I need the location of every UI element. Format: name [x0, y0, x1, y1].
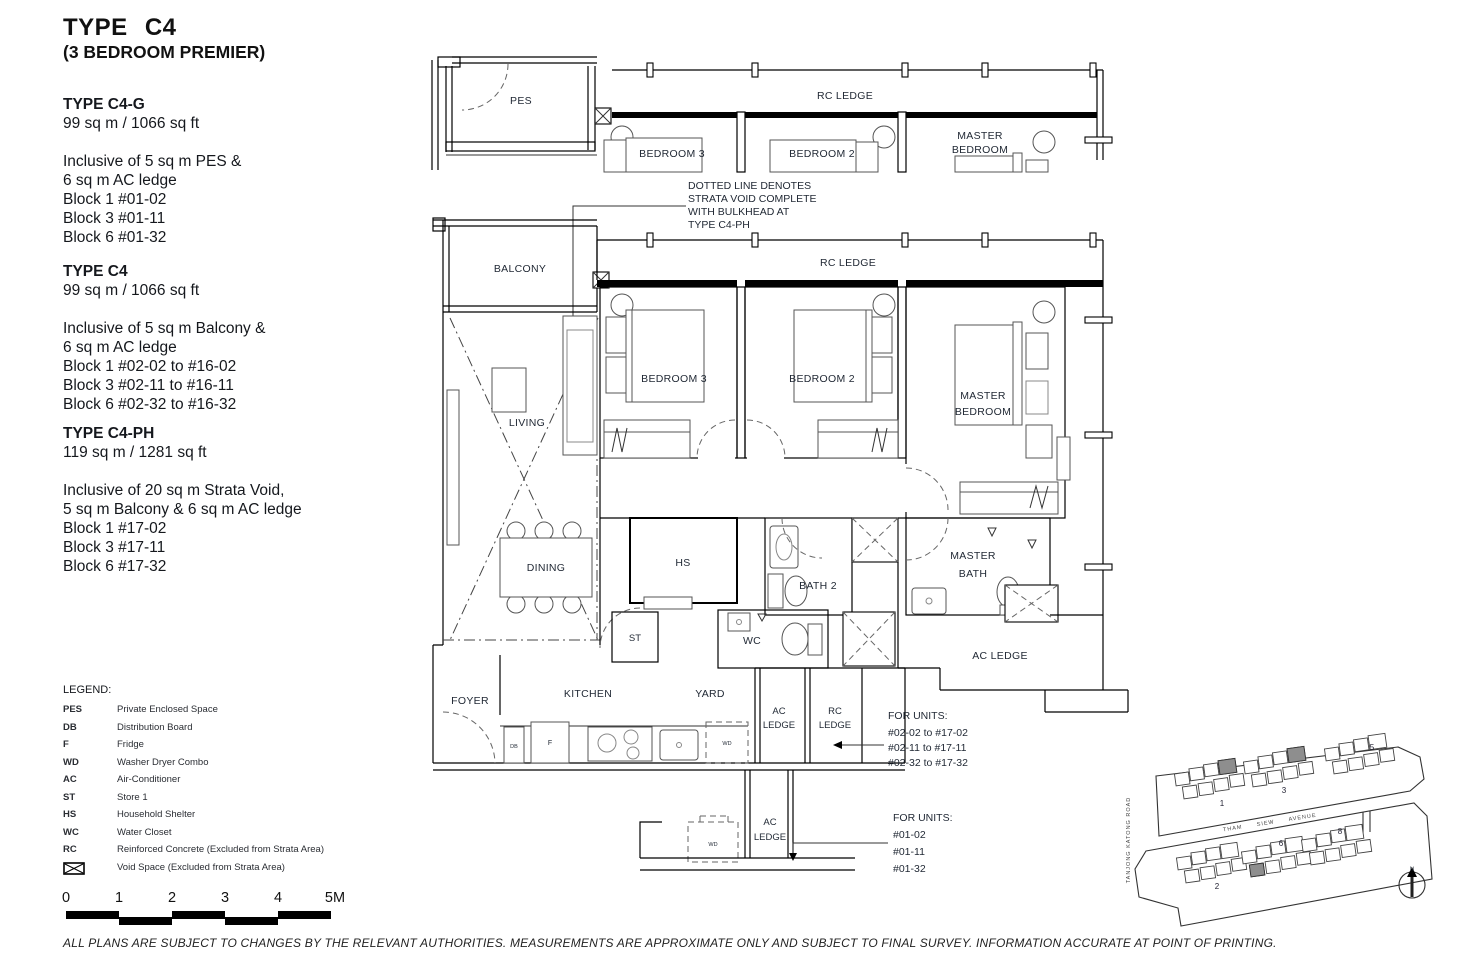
variant-c4ph: TYPE C4-PH 119 sq m / 1281 sq ft Inclusi…: [63, 424, 393, 576]
note-line: FOR UNITS:: [893, 812, 953, 824]
block-number: 3: [1282, 786, 1287, 795]
variant-name: TYPE C4: [63, 262, 393, 281]
variant-detail: Inclusive of 5 sq m Balcony &: [63, 319, 393, 338]
units-note-upper: FOR UNITS: #02-02 to #17-02 #02-11 to #1…: [833, 710, 968, 769]
room-label-master: MASTER: [957, 130, 1003, 142]
variant-c4g: TYPE C4-G 99 sq m / 1066 sq ft Inclusive…: [63, 95, 393, 247]
room-label-dining: DINING: [527, 562, 566, 574]
legend-abbr: RC: [63, 844, 117, 855]
legend-abbr: WC: [63, 827, 117, 838]
room-label-ledge: LEDGE: [819, 720, 851, 731]
block-number: 1: [1220, 799, 1225, 808]
ac-unit-icon: [1005, 585, 1058, 622]
room-label-rc-ledge: RC LEDGE: [817, 90, 873, 102]
ac-unit-icon: [843, 612, 895, 666]
scale-segment: [278, 911, 331, 919]
scale-num: 3: [221, 890, 229, 906]
room-label-master: BEDROOM: [955, 406, 1011, 418]
block-number: 6: [1279, 839, 1284, 848]
room-label-ac-ledge: AC LEDGE: [972, 650, 1028, 662]
variant-detail: 5 sq m Balcony & 6 sq m AC ledge: [63, 500, 393, 519]
note-line: #01-11: [893, 846, 925, 858]
legend-abbr: ST: [63, 792, 117, 803]
fixture-label-db: DB: [510, 744, 518, 750]
variant-detail: Block 1 #17-02: [63, 519, 393, 538]
variant-area: 99 sq m / 1066 sq ft: [63, 114, 393, 133]
disclaimer-text: ALL PLANS ARE SUBJECT TO CHANGES BY THE …: [63, 936, 1277, 950]
legend-abbr: HS: [63, 809, 117, 820]
room-label-ledge: LEDGE: [754, 832, 786, 843]
variant-detail: Block 3 #01-11: [63, 209, 393, 228]
scale-num: 4: [274, 890, 282, 906]
room-label-ledge: LEDGE: [763, 720, 795, 731]
scale-segment: [66, 911, 119, 919]
room-label-master-bath: BATH: [959, 568, 987, 580]
legend-heading: LEGEND:: [63, 684, 393, 696]
legend-row: FFridge: [63, 739, 393, 750]
compass-n-label: N: [1410, 867, 1414, 873]
variant-detail: Block 6 #01-32: [63, 228, 393, 247]
scale-num: 5M: [325, 890, 345, 906]
legend-desc: Private Enclosed Space: [117, 704, 218, 715]
note-line: #01-32: [893, 863, 926, 875]
site-plan: TANJONG KATONG ROAD THAM SIEW AVENUE 1 3…: [1126, 733, 1432, 926]
legend-desc: Void Space (Excluded from Strata Area): [117, 862, 285, 873]
room-label-bedroom2: BEDROOM 2: [789, 373, 855, 385]
room-label-balcony: BALCONY: [494, 263, 546, 275]
room-label-st: ST: [629, 633, 641, 644]
legend-row: RCReinforced Concrete (Excluded from Str…: [63, 844, 393, 855]
scale-segment: [119, 917, 172, 925]
floorplan-page: { "page": { "title": "TYPE C4", "subtitl…: [0, 0, 1473, 965]
note-line: #01-02: [893, 829, 926, 841]
room-label-bedroom2: BEDROOM 2: [789, 148, 855, 160]
variant-area: 119 sq m / 1281 sq ft: [63, 443, 393, 462]
note-line: WITH BULKHEAD AT: [688, 206, 790, 218]
legend-desc: Fridge: [117, 739, 144, 750]
legend-abbr: AC: [63, 774, 117, 785]
note-line: #02-32 to #17-32: [888, 757, 968, 769]
scale-num: 0: [62, 890, 70, 906]
room-label-yard: YARD: [695, 688, 725, 700]
legend-desc: Reinforced Concrete (Excluded from Strat…: [117, 844, 324, 855]
legend-row: STStore 1: [63, 792, 393, 803]
void-space-icon: [595, 108, 611, 124]
void-space-icon: [63, 862, 117, 878]
legend-desc: Distribution Board: [117, 722, 193, 733]
room-label-bedroom3: BEDROOM 3: [639, 148, 705, 160]
room-label-ac: AC: [763, 817, 776, 828]
floor-trap-icon: [988, 528, 996, 536]
scale-num: 1: [115, 890, 123, 906]
floor-plan: PES RC LEDGE BEDROOM 3 BEDROOM 2 MASTER …: [425, 50, 1473, 930]
variant-name: TYPE C4-G: [63, 95, 393, 114]
room-label-hs: HS: [675, 557, 690, 569]
scale-segment: [225, 917, 278, 925]
variant-detail: 6 sq m AC ledge: [63, 171, 393, 190]
variant-detail: Inclusive of 5 sq m PES &: [63, 152, 393, 171]
legend-desc: Water Closet: [117, 827, 172, 838]
room-label-wc: WC: [743, 635, 761, 647]
legend-desc: Household Shelter: [117, 809, 195, 820]
legend-abbr: PES: [63, 704, 117, 715]
variant-detail: Block 6 #02-32 to #16-32: [63, 395, 393, 414]
leader-line: [793, 843, 888, 853]
fixture-label-fridge: F: [548, 740, 552, 747]
block-number: 8: [1338, 827, 1343, 836]
block-number: 5: [1370, 743, 1375, 752]
room-label-bedroom3: BEDROOM 3: [641, 373, 707, 385]
north-compass-icon: N: [1399, 867, 1425, 898]
room-label-ac: AC: [772, 706, 785, 717]
legend-abbr: F: [63, 739, 117, 750]
variant-name: TYPE C4-PH: [63, 424, 393, 443]
block-cluster-5: [1323, 733, 1395, 775]
legend-row: ACAir-Conditioner: [63, 774, 393, 785]
variant-detail: Block 6 #17-32: [63, 557, 393, 576]
page-subtitle: (3 BEDROOM PREMIER): [63, 42, 265, 63]
legend-row: PESPrivate Enclosed Space: [63, 704, 393, 715]
room-label-master: MASTER: [960, 390, 1006, 402]
void-space-icon: [852, 518, 898, 562]
arrow-down-icon: [789, 853, 797, 861]
note-line: STRATA VOID COMPLETE: [688, 193, 817, 205]
legend-row: WDWasher Dryer Combo: [63, 757, 393, 768]
room-label-rc-ledge: RC LEDGE: [820, 257, 876, 269]
road-crossing: [1363, 811, 1370, 833]
block-cluster-8: [1300, 824, 1372, 866]
variant-detail: Block 3 #02-11 to #16-11: [63, 376, 393, 395]
legend: LEGEND: PESPrivate Enclosed Space DBDist…: [63, 684, 393, 884]
note-line: #02-02 to #17-02: [888, 727, 968, 739]
scale-bar: 0 1 2 3 4 5M: [63, 890, 403, 930]
legend-abbr: WD: [63, 757, 117, 768]
variant-detail: Block 1 #01-02: [63, 190, 393, 209]
variant-area: 99 sq m / 1066 sq ft: [63, 281, 393, 300]
variant-detail: 6 sq m AC ledge: [63, 338, 393, 357]
note-line: FOR UNITS:: [888, 710, 948, 722]
floor-trap-icon: [1028, 540, 1036, 548]
legend-row-void: Void Space (Excluded from Strata Area): [63, 862, 393, 878]
main-plan: BALCONY LIVING RC LEDGE: [433, 218, 1128, 770]
upper-plan: PES RC LEDGE BEDROOM 3 BEDROOM 2 MASTER …: [432, 57, 1112, 172]
room-label-rc: RC: [828, 706, 842, 717]
road-label-tanjong-katong: TANJONG KATONG ROAD: [1126, 797, 1132, 884]
legend-abbr: DB: [63, 722, 117, 733]
ac-ledge-detail: WD AC LEDGE FOR UNITS: #01-02 #01-11 #01…: [640, 770, 953, 875]
room-label-master: BEDROOM: [952, 144, 1008, 156]
variant-detail: Inclusive of 20 sq m Strata Void,: [63, 481, 393, 500]
room-label-master-bath: MASTER: [950, 550, 996, 562]
room-label-foyer: FOYER: [451, 695, 489, 707]
room-label-living: LIVING: [509, 417, 545, 429]
legend-row: DBDistribution Board: [63, 722, 393, 733]
variant-detail: Block 1 #02-02 to #16-02: [63, 357, 393, 376]
block-cluster-1: [1173, 758, 1245, 800]
variant-detail: Block 3 #17-11: [63, 538, 393, 557]
variant-c4: TYPE C4 99 sq m / 1066 sq ft Inclusive o…: [63, 262, 393, 414]
note-line: DOTTED LINE DENOTES: [688, 180, 811, 192]
block-number: 2: [1215, 882, 1220, 891]
page-title: TYPE C4: [63, 14, 177, 42]
legend-desc: Washer Dryer Combo: [117, 757, 209, 768]
fixture-label-wd: WD: [722, 741, 731, 747]
legend-row: HSHousehold Shelter: [63, 809, 393, 820]
room-label-bath2: BATH 2: [799, 580, 837, 592]
block-cluster-3: [1242, 746, 1314, 788]
legend-desc: Store 1: [117, 792, 148, 803]
note-line: #02-11 to #17-11: [888, 742, 967, 754]
arrow-left-icon: [833, 741, 842, 749]
note-line: TYPE C4-PH: [688, 219, 750, 231]
scale-segment: [172, 911, 225, 919]
scale-num: 2: [168, 890, 176, 906]
block-cluster-2: [1175, 842, 1247, 884]
room-label-pes: PES: [510, 95, 532, 107]
fixture-label-wd: WD: [708, 842, 717, 848]
room-label-kitchen: KITCHEN: [564, 688, 612, 700]
legend-desc: Air-Conditioner: [117, 774, 180, 785]
legend-row: WCWater Closet: [63, 827, 393, 838]
